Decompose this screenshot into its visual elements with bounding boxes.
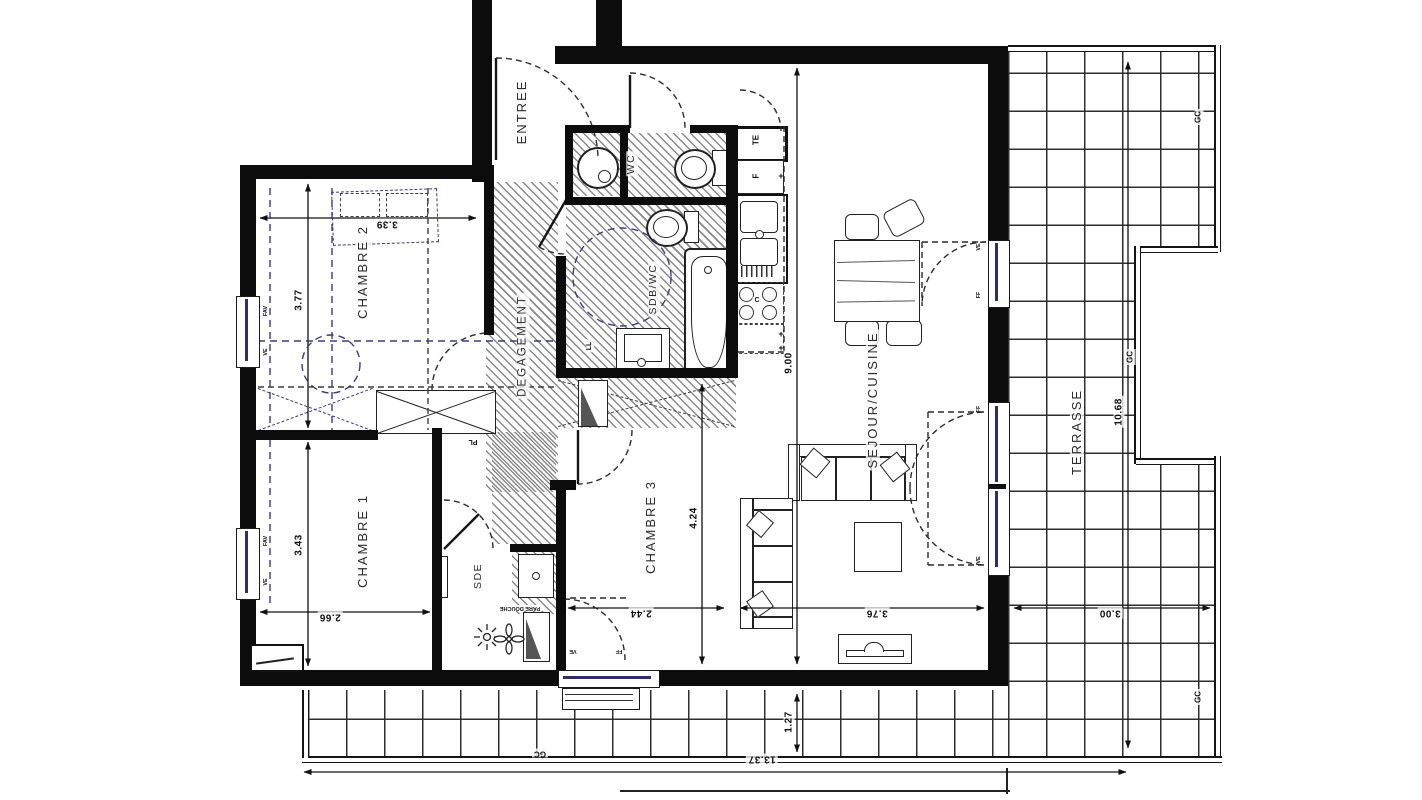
room-label-chambre3: CHAMBRE 3 [644,478,658,576]
label-placard: PL [467,437,480,445]
wall-chambre3-left [556,490,566,672]
label-gc-notch: GC [1127,349,1136,365]
wall-chambre2-corridor [484,165,494,335]
kitchen-plus-mark-2: + [776,330,785,340]
wall-sde-top-stub [510,544,558,552]
label-ff-door2: FF [976,404,982,415]
label-fav-window2: FAV [263,534,269,548]
dim-terrasse-height: 10.68 [1114,396,1125,428]
label-ve-chambre3-door: VE [567,648,578,654]
wall-sdb-bottom [556,368,738,378]
label-gc-top-right: GC [1195,109,1204,125]
wall-left [240,165,256,685]
dim-terrasse-total-width: 13.37 [746,754,778,765]
dim-chambre2-height: 3.77 [294,287,305,312]
label-gc-bottom-right: GC [1195,689,1204,705]
label-ff-door1: FF [976,290,982,301]
label-washing-machine: LL [586,340,594,353]
room-label-wc: WC [626,152,638,177]
terrace-door-single [988,240,1010,308]
dim-terrasse-front-depth: 1.27 [784,709,795,734]
wall-entry-west [472,0,492,182]
chambre3-door-sill [562,688,640,710]
room-label-entree: ENTREE [515,78,529,147]
label-ve-door2: VE [976,554,982,565]
wall-chambre3-stub [550,480,576,490]
room-label-sde: SDE [473,561,485,591]
radiator-slot [250,644,304,672]
terrace-door-double [988,402,1010,576]
dim-chambre3-width: 2.44 [628,608,653,619]
wall-right-upper [988,46,1008,242]
wall-kitchen [726,125,738,368]
label-fav-window1: FAV [263,304,269,318]
wall-chambre1-right [432,428,442,672]
wall-bottom-west [240,670,560,686]
room-label-chambre1: CHAMBRE 1 [356,492,370,590]
chambre3-terrace-door [558,670,660,688]
label-gc-bottom: GC [532,749,548,758]
dim-terrasse-right-width: 3.00 [1097,608,1122,619]
room-label-degagement: DEGAGEMENT [517,293,530,399]
wall-chambre2-chambre1 [256,430,378,440]
label-te: TE [753,133,762,147]
kitchen-plus-mark-3: + [776,344,785,354]
door-swings [432,58,986,660]
wall-top-chambre2 [240,165,492,179]
dim-sejour-width: 3.76 [864,608,889,619]
dim-chambre1-height: 3.43 [294,532,305,557]
label-cooktop: C [752,297,761,305]
label-ve-window2: VE [263,576,269,587]
label-ve-door1: VE [976,241,982,252]
window-chambre1 [236,528,260,600]
wall-hall-sdb-upper [556,256,566,378]
label-ve-window1: VE [263,346,269,357]
layout-guides [258,188,671,606]
light-fan-symbols [474,624,524,654]
label-fridge: F [753,172,762,181]
dim-chambre1-width: 2.66 [317,612,342,623]
window-chambre2 [236,296,260,368]
floor-plan: ENTREE CHAMBRE 2 DEGAGEMENT WC SDB/WC SE… [0,0,1422,800]
room-label-terrasse: TERRASSE [1070,387,1084,477]
wall-top-main [555,46,1008,64]
wall-right-mid [988,306,1008,402]
room-label-sdb-wc: SDB/WC [648,262,660,317]
dim-chambre2-width: 3.39 [374,219,399,230]
dim-chambre3-height: 4.24 [689,505,700,530]
wall-entry-cell-west [565,128,573,198]
label-pare-douche: PARE DOUCHE [498,605,542,611]
dim-sejour-height: 9.00 [784,350,795,375]
kitchen-plus-mark-1: + [776,172,785,182]
label-ff-chambre3-door: FF [614,648,625,654]
room-label-chambre2: CHAMBRE 2 [356,223,370,321]
room-label-sejour-cuisine: SEJOUR/CUISINE [866,329,880,470]
wall-wc-sdb-separator [565,197,738,205]
wall-bottom-east [656,670,1008,686]
